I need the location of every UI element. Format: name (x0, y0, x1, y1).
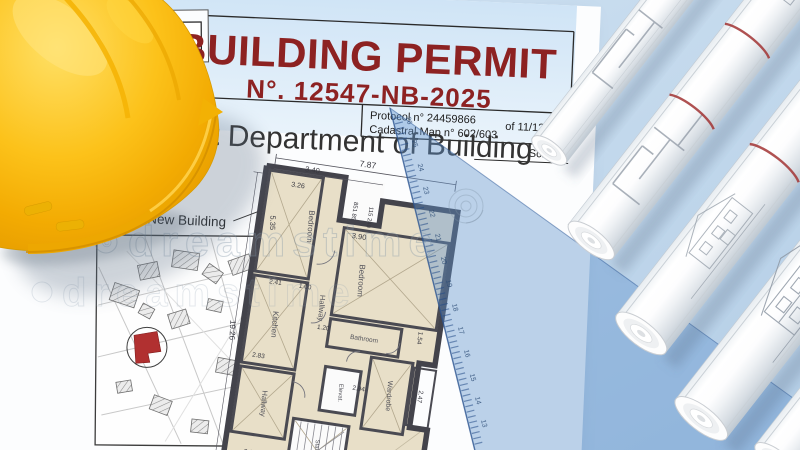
stock-photo-building-permit-scene: MAP BUILDING PERMIT N°. 12547-NB-2025 Pr… (0, 0, 800, 450)
dim-label: 19.26 (227, 320, 237, 341)
scene-canvas: MAP BUILDING PERMIT N°. 12547-NB-2025 Pr… (0, 0, 800, 450)
dim-label: 5.35 (268, 215, 278, 230)
